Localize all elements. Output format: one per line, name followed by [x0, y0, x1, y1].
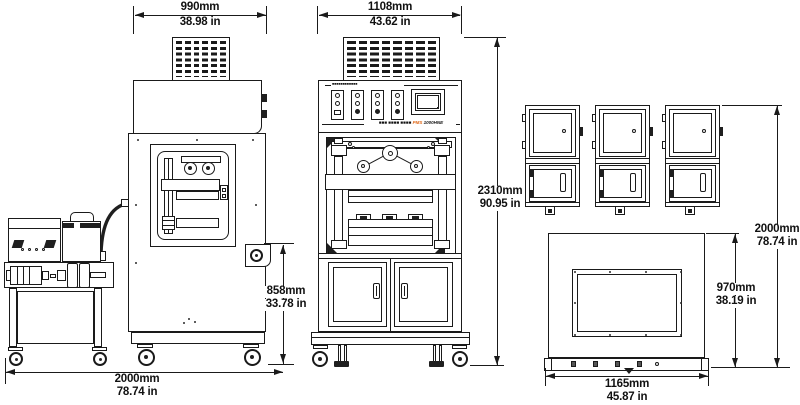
dark-detail: [255, 254, 258, 257]
dim-label-in: 45.87 in: [605, 392, 650, 404]
drawing-shape: [222, 194, 226, 198]
dark-detail: [688, 209, 692, 213]
panel-button-icon: [355, 109, 360, 114]
drawing-line: [23, 267, 24, 284]
rivet-dot: [609, 271, 611, 273]
dim-arrow-icon: [732, 358, 738, 367]
drawing-shape: [359, 41, 368, 77]
door-slot-handle-icon: [560, 173, 566, 192]
drawing-line: [268, 364, 294, 365]
vent-grille-icon: [172, 37, 230, 81]
press-column-right: [438, 156, 447, 242]
drawing-shape: [185, 41, 191, 77]
outlet-pipe: [90, 272, 106, 278]
hinge-tab: [522, 114, 526, 122]
drawing-shape: [533, 113, 572, 153]
leveling-foot-pad: [429, 361, 444, 367]
hinge-tab: [662, 141, 666, 149]
machine-base-side: [131, 332, 265, 344]
filter-block: [67, 263, 78, 288]
drawing-line: [404, 286, 406, 296]
leveling-foot-stem: [338, 345, 341, 362]
head-latch: [261, 110, 267, 118]
dark-detail: [548, 209, 552, 213]
dark-detail: [250, 355, 254, 359]
drawing-shape: [202, 41, 208, 77]
dim-arrow-icon: [774, 106, 780, 115]
dark-detail: [63, 223, 74, 228]
rivet-dot: [680, 302, 682, 304]
drawing-circle: [414, 164, 418, 168]
drawing-line: [470, 365, 504, 366]
rivet-dot: [99, 358, 102, 361]
dim-label-in: 43.62 in: [368, 17, 413, 29]
drawing-line: [163, 220, 174, 221]
latch-tab: [649, 127, 653, 136]
dark-detail: [206, 166, 210, 170]
dim-label-mm: 1108mm: [366, 2, 414, 14]
panel-button-icon: [395, 101, 400, 106]
dim-label-mm: 970mm: [715, 283, 758, 295]
drawing-shape: [211, 41, 217, 77]
hinge: [530, 169, 534, 177]
drawing-circle: [348, 142, 352, 146]
drawing-line: [666, 158, 719, 159]
dim-label-mm: 2310mm: [476, 186, 525, 198]
leveling-foot-pad: [334, 361, 349, 367]
drawing-shape: [222, 188, 226, 192]
indicator-dot: [28, 248, 31, 251]
dark-detail: [318, 357, 322, 361]
panel-button-icon: [335, 93, 340, 98]
cart-leg-left: [9, 288, 17, 347]
drawing-line: [708, 368, 709, 386]
dim-label-in: 38.98 in: [178, 17, 223, 29]
dim-label-in: 90.95 in: [478, 199, 523, 211]
dim-label-in: 38.19 in: [714, 296, 759, 308]
drawing-line: [722, 105, 782, 106]
control-cabinet: [525, 105, 580, 217]
door-knob-icon: [702, 129, 706, 133]
caster-plate: [243, 344, 259, 348]
latch-tab: [579, 127, 583, 136]
door-knob-icon: [632, 129, 636, 133]
drawing-circle: [427, 146, 430, 149]
leveling-foot-stem: [433, 345, 436, 362]
hinge-tab: [662, 114, 666, 122]
motor-end-cap: [6, 270, 11, 281]
drawing-line: [349, 196, 432, 197]
drawing-shape: [194, 41, 200, 77]
drawing-line: [596, 202, 649, 203]
panel-button-icon: [375, 109, 380, 114]
upper-platen-side: [161, 179, 220, 191]
drawing-line: [526, 202, 579, 203]
coupling: [57, 270, 66, 281]
strip-clip: [593, 361, 598, 367]
drawing-shape: [370, 41, 379, 77]
drawing-shape: [220, 41, 226, 77]
drawing-line: [9, 228, 60, 229]
drawing-circle: [352, 146, 355, 149]
brand-accent: PMS: [413, 120, 423, 125]
panel-button-icon: [355, 93, 360, 98]
dim-arrow-icon: [135, 12, 144, 18]
column-base: [331, 240, 347, 249]
control-cabinet: [595, 105, 650, 217]
drawing-shape: [176, 41, 182, 77]
drawing-circle: [388, 151, 393, 156]
dim-label-in: 78.74 in: [755, 237, 800, 249]
coupling: [42, 271, 49, 280]
dim-label-in: 78.74 in: [115, 387, 160, 399]
press-column-left: [334, 156, 343, 242]
indicator-dot: [35, 248, 38, 251]
leveling-foot-stem: [439, 345, 442, 362]
dim-arrow-icon: [732, 234, 738, 243]
drawing-line: [456, 124, 460, 125]
rivet-dot: [196, 139, 198, 141]
strip-clip: [637, 361, 642, 367]
rivet-dot: [183, 322, 185, 324]
dim-arrow-icon: [280, 245, 286, 254]
panel-button-icon: [355, 101, 360, 106]
hinge: [670, 190, 674, 198]
drawing-line: [322, 124, 364, 125]
dim-arrow-icon: [494, 38, 500, 47]
door-knob-icon: [562, 129, 566, 133]
rivet-dot: [680, 334, 682, 336]
panel-button-icon: [395, 93, 400, 98]
dim-label-in: 33.78 in: [264, 299, 309, 311]
drawing-shape: [382, 41, 391, 77]
lower-platen-stack: [348, 219, 433, 246]
hmi-screen: [417, 95, 439, 109]
drawing-line: [546, 376, 708, 377]
brand-text: ■■■ ■■■■ ■■■■ PMS 1000HNE: [366, 120, 456, 125]
head-latch: [261, 94, 267, 102]
door-slot-handle-icon: [700, 173, 706, 192]
hinge: [600, 169, 604, 177]
hinge: [530, 190, 534, 198]
drawing-line: [666, 202, 719, 203]
drawing-line: [17, 267, 18, 284]
lower-plate-side: [176, 218, 219, 228]
drawing-line: [318, 253, 462, 254]
dark-detail: [188, 166, 192, 170]
drawing-line: [711, 367, 790, 368]
drawing-line: [404, 85, 458, 86]
hinge-tab: [522, 141, 526, 149]
drawing-line: [596, 158, 649, 159]
drawing-line: [264, 243, 294, 244]
drawing-shape: [673, 169, 712, 198]
machine-dimension-drawing: ■■■■■■■■■■■■ ■■■ ■■■■ ■■■■ PMS 1000HNE: [0, 0, 800, 405]
drawing-shape: [577, 274, 677, 332]
rivet-dot: [188, 318, 190, 320]
column-base: [434, 240, 450, 249]
valve-stack: [162, 216, 175, 230]
door-slot-handle-icon: [630, 173, 636, 192]
drawing-line: [526, 158, 579, 159]
coupling: [50, 274, 56, 278]
drawing-line: [526, 163, 579, 164]
rivet-dot: [15, 358, 18, 361]
center-marker-icon: [624, 368, 634, 374]
sub-plate-side: [176, 191, 219, 200]
dim-arrow-icon: [280, 354, 286, 363]
drawing-shape: [347, 41, 356, 77]
caster-plate: [137, 344, 153, 348]
caster-plate: [452, 345, 467, 349]
drawing-line: [266, 6, 267, 34]
rivet-dot: [574, 302, 576, 304]
rivet-dot: [609, 334, 611, 336]
drawing-line: [133, 6, 134, 34]
dim-arrow-icon: [452, 12, 461, 18]
drawing-shape: [405, 41, 414, 77]
caster-plate: [313, 345, 328, 349]
rivet-dot: [574, 271, 576, 273]
hinge-tab: [592, 114, 596, 122]
panel-button-icon: [375, 93, 380, 98]
drawing-circle: [655, 362, 659, 366]
drawing-line: [701, 359, 702, 370]
cart-leg-right: [94, 288, 102, 347]
column-bolt: [438, 138, 447, 144]
rivet-dot: [135, 204, 137, 206]
panel-button-icon: [335, 101, 340, 106]
caster-plate: [92, 347, 107, 351]
strip-clip: [571, 361, 576, 367]
vent-grille-icon: [343, 37, 440, 81]
strip-clip: [615, 361, 620, 367]
filter-block: [79, 263, 90, 288]
caster-plate: [8, 347, 23, 351]
drawing-shape: [101, 203, 128, 253]
drawing-line: [163, 225, 174, 226]
indicator-dot: [21, 248, 24, 251]
dark-detail: [144, 355, 148, 359]
panel-button-icon: [395, 109, 400, 114]
drawing-line: [349, 235, 432, 236]
rivet-dot: [137, 139, 139, 141]
panel-button-icon: [375, 101, 380, 106]
dark-detail: [458, 357, 462, 361]
drawing-circle: [361, 164, 365, 168]
column-cap: [331, 145, 347, 156]
dim-arrow-icon: [699, 373, 708, 379]
cart-lower-panel: [17, 291, 94, 344]
rivet-dot: [645, 271, 647, 273]
dark-detail: [80, 223, 100, 228]
control-cabinet: [665, 105, 720, 217]
dim-arrow-icon: [6, 369, 15, 375]
brand-left: ■■■ ■■■■ ■■■■: [379, 120, 411, 125]
dim-label-mm: 990mm: [179, 2, 222, 14]
drawing-shape: [334, 110, 341, 115]
machine-base-front: [311, 332, 470, 345]
drawing-shape: [533, 169, 572, 198]
brand-model: 1000HNE: [424, 120, 444, 125]
dim-label-mm: 1165mm: [603, 379, 651, 391]
drawing-shape: [393, 41, 402, 77]
drawing-line: [325, 85, 331, 86]
machine-head-box: [133, 80, 262, 134]
drawing-line: [376, 286, 378, 296]
drawing-line: [461, 6, 462, 34]
rivet-dot: [135, 262, 137, 264]
upper-platen: [325, 174, 456, 190]
drawing-shape: [673, 113, 712, 153]
column-cap: [434, 145, 450, 156]
drawing-line: [666, 163, 719, 164]
pump-motor: [10, 266, 42, 285]
hinge: [600, 190, 604, 198]
drawing-shape: [603, 169, 642, 198]
dark-detail: [437, 107, 439, 109]
indicator-dot: [42, 248, 45, 251]
hinge-tab: [592, 141, 596, 149]
rivet-dot: [645, 334, 647, 336]
dim-label-mm: 2000mm: [753, 224, 800, 236]
drawing-shape: [603, 113, 642, 153]
dim-arrow-icon: [274, 369, 283, 375]
rivet-dot: [194, 321, 196, 323]
dark-detail: [618, 209, 622, 213]
rivet-dot: [680, 271, 682, 273]
dim-label-mm: 858mm: [265, 286, 308, 298]
drawing-shape: [428, 41, 437, 77]
dim-arrow-icon: [257, 12, 266, 18]
drawing-line: [551, 359, 552, 370]
drawing-line: [318, 132, 462, 133]
drawing-shape: [416, 41, 425, 77]
panel-header-microtext: ■■■■■■■■■■■■: [332, 82, 402, 86]
dim-arrow-icon: [319, 12, 328, 18]
column-bolt: [334, 138, 343, 144]
rivet-dot: [252, 139, 254, 141]
drawing-line: [596, 163, 649, 164]
dim-label-mm: 2000mm: [113, 374, 162, 386]
drawing-line: [390, 259, 391, 332]
dim-arrow-icon: [546, 373, 555, 379]
latch-tab: [719, 127, 723, 136]
leveling-foot-stem: [344, 345, 347, 362]
drawing-line: [349, 227, 432, 228]
drawing-line: [29, 267, 30, 284]
drawing-line: [312, 337, 469, 338]
rivet-dot: [574, 334, 576, 336]
drawing-line: [317, 6, 318, 34]
hinge: [670, 169, 674, 177]
rivet-dot: [255, 204, 257, 206]
